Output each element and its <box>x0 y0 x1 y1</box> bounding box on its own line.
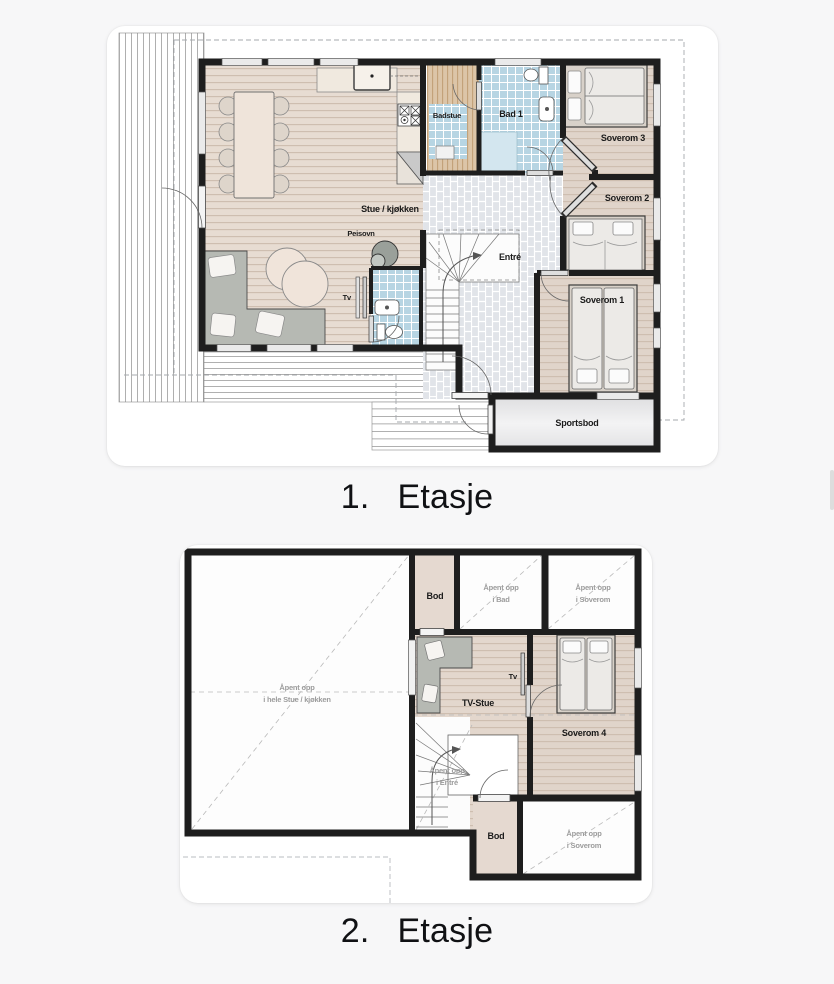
pillow <box>613 222 633 235</box>
coffee-table <box>282 261 328 307</box>
label-tv-stue: TV-Stue <box>462 698 494 708</box>
door-bod-bottom <box>478 795 510 802</box>
desk-chair <box>424 640 445 661</box>
floor2-caption-number: 2. <box>341 912 370 951</box>
site-dashes <box>183 857 390 903</box>
floor1-caption: 1. Etasje <box>0 478 834 517</box>
floor1-caption-name: Etasje <box>398 478 494 517</box>
desk-chair <box>422 684 439 703</box>
railing-glass <box>409 640 416 695</box>
bed-soverom3 <box>564 65 647 127</box>
toilet-tank <box>377 324 385 340</box>
tv-bench <box>356 277 360 318</box>
fireplace <box>371 241 398 268</box>
label-sportsbod: Sportsbod <box>555 418 598 428</box>
label-apent-sov-btm-1: Åpent opp <box>566 829 602 838</box>
label-bad1: Bad 1 <box>499 109 523 119</box>
label-peisovn: Peisovn <box>347 229 375 238</box>
pillow <box>577 369 597 383</box>
floor2-caption: 2. Etasje <box>0 912 834 951</box>
sofa-cushion <box>208 254 237 277</box>
tv-screen <box>521 653 525 695</box>
label-bod-bottom: Bod <box>488 831 505 841</box>
floor2-plan-card: Bod Åpent opp i Bad Åpent opp i Soverom … <box>180 545 652 903</box>
label-bod-top: Bod <box>427 591 444 601</box>
floor2-caption-name: Etasje <box>398 912 494 951</box>
label-soverom4: Soverom 4 <box>562 728 606 738</box>
door-badstue <box>477 82 482 110</box>
sauna-heater <box>436 146 454 159</box>
toilet-bowl <box>524 69 538 81</box>
label-apent-entre-1: Åpent opp <box>429 766 465 775</box>
bed-soverom2 <box>566 216 645 270</box>
label-stue-kjokken: Stue / kjøkken <box>361 204 419 214</box>
pillow <box>568 98 581 120</box>
label-apent-hele-2: i hele Stue / kjøkken <box>263 695 331 704</box>
floor1-caption-number: 1. <box>341 478 370 517</box>
label-apent-bad-2: i Bad <box>492 595 510 604</box>
label-entre: Entré <box>499 252 521 262</box>
label-tv: Tv <box>343 293 352 302</box>
label-apent-sov-top-1: Åpent opp <box>575 583 611 592</box>
label-apent-sov-top-2: i Soverom <box>576 595 611 604</box>
door-wc <box>369 316 374 342</box>
tv-screen <box>363 277 367 318</box>
label-soverom1: Soverom 1 <box>580 295 624 305</box>
pillow <box>573 222 593 235</box>
shower-area <box>481 132 517 171</box>
floor1-plan: Stue / kjøkken Badstue Bad 1 Soverom 3 S… <box>107 26 718 466</box>
front-door <box>452 393 488 399</box>
label-badstue: Badstue <box>433 111 461 120</box>
label-apent-sov-btm-2: i Soverom <box>567 841 602 850</box>
label-apent-hele-1: Åpent opp <box>279 683 315 692</box>
door-bod-top <box>420 629 444 636</box>
pillow <box>590 641 608 653</box>
door-sportsbod <box>488 405 493 434</box>
scrollbar-thumb[interactable] <box>830 470 834 510</box>
sofa-cushion <box>210 313 236 337</box>
door-soverom4 <box>526 685 531 717</box>
pillow <box>563 641 581 653</box>
label-soverom2: Soverom 2 <box>605 193 649 203</box>
pillow <box>609 369 629 383</box>
dining-table <box>234 92 274 198</box>
floor2-plan: Bod Åpent opp i Bad Åpent opp i Soverom … <box>180 545 652 903</box>
terrace-door <box>199 186 206 228</box>
label-apent-bad-1: Åpent opp <box>483 583 519 592</box>
label-apent-entre-2: i Entré <box>436 778 458 787</box>
door-soverom1 <box>541 271 568 276</box>
floor1-plan-card: Stue / kjøkken Badstue Bad 1 Soverom 3 S… <box>107 26 718 466</box>
pillow <box>568 71 581 93</box>
label-tv: Tv <box>509 672 518 681</box>
label-soverom3: Soverom 3 <box>601 133 645 143</box>
bed-soverom4 <box>557 635 615 713</box>
